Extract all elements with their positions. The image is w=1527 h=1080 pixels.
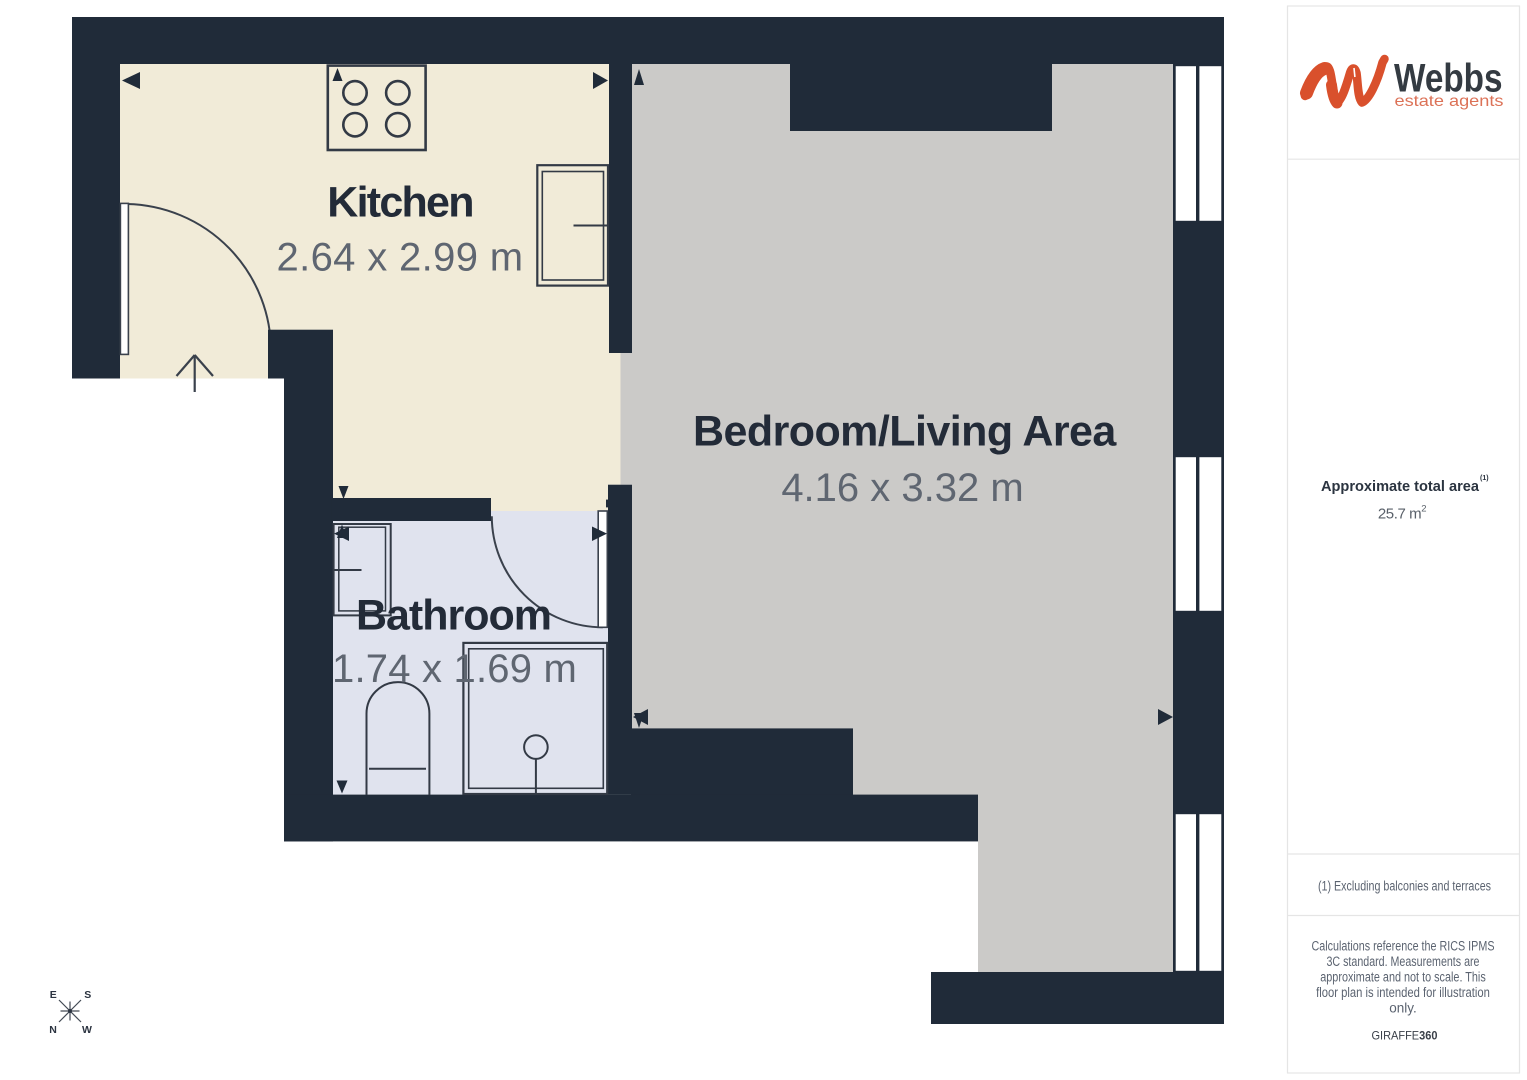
svg-text:1.74 x 1.69 m: 1.74 x 1.69 m (332, 647, 577, 691)
svg-text:only.: only. (1389, 1001, 1417, 1016)
svg-text:approximate and not to scale.: approximate and not to scale. This (1320, 970, 1486, 985)
svg-text:S: S (84, 989, 91, 1001)
svg-text:GIRAFFE360: GIRAFFE360 (1372, 1029, 1438, 1043)
svg-text:(1): (1) (1480, 475, 1489, 482)
svg-text:Kitchen: Kitchen (327, 179, 472, 227)
svg-text:N: N (49, 1024, 57, 1036)
svg-text:4.16 x 3.32 m: 4.16 x 3.32 m (781, 466, 1023, 510)
svg-text:Bedroom/Living Area: Bedroom/Living Area (693, 408, 1117, 456)
svg-text:floor plan is intended for ill: floor plan is intended for illustration (1316, 985, 1490, 1000)
svg-text:25.7 m2: 25.7 m2 (1378, 504, 1426, 523)
svg-text:Approximate total area: Approximate total area (1321, 478, 1480, 495)
svg-text:Calculations reference the RIC: Calculations reference the RICS IPMS (1312, 939, 1495, 954)
svg-text:estate agents: estate agents (1395, 93, 1504, 110)
svg-text:W: W (82, 1024, 92, 1036)
svg-text:2.64 x 2.99 m: 2.64 x 2.99 m (277, 236, 524, 280)
svg-text:3C standard. Measurements are: 3C standard. Measurements are (1327, 954, 1480, 969)
svg-text:Bathroom: Bathroom (356, 592, 551, 640)
svg-text:E: E (50, 989, 57, 1001)
svg-text:(1) Excluding balconies and te: (1) Excluding balconies and terraces (1318, 879, 1491, 894)
